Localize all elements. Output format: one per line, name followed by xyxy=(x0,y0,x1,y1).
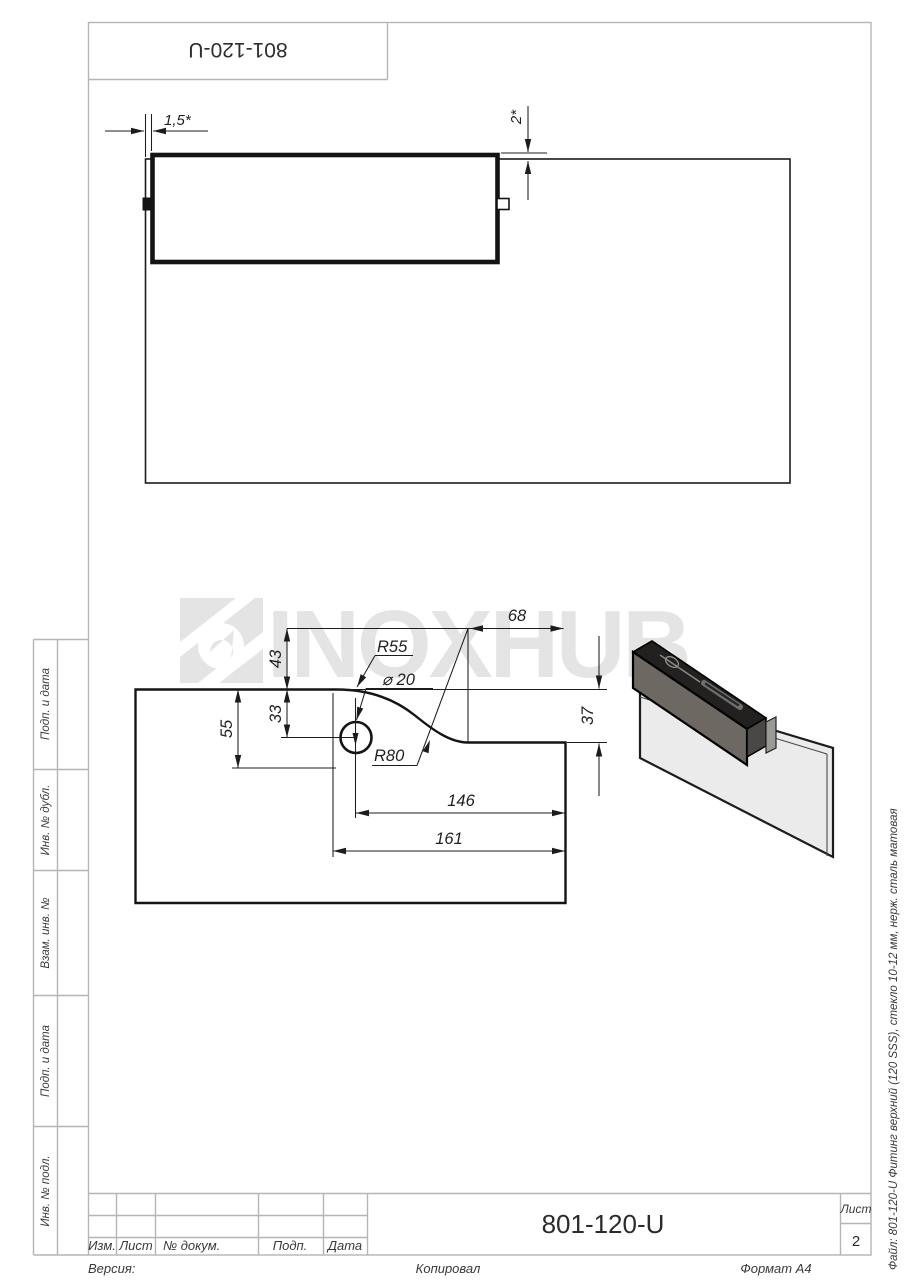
sidebar-item-podp-data-1: Подп. и дата xyxy=(40,668,52,740)
glass-profile-outline xyxy=(136,690,566,904)
footer-version-label: Версия: xyxy=(88,1261,136,1276)
dim-label-37: 37 xyxy=(579,706,597,725)
dim-label-55: 55 xyxy=(218,719,236,738)
inoxhub-watermark: INOXHUB xyxy=(180,591,689,698)
title-block-col-izm: Изм. xyxy=(88,1238,116,1253)
dim-label-161: 161 xyxy=(435,830,463,848)
file-note: Файл: 801-120-U Фитинг верхний (120 SSS)… xyxy=(888,808,900,1270)
top-doc-number: 801-120-U xyxy=(188,38,287,61)
footer-copied-label: Копировал xyxy=(416,1261,481,1276)
sidebar-item-vzam-inv: Взам. инв. № xyxy=(40,897,52,969)
dim-label-dia20: ⌀ 20 xyxy=(382,671,416,689)
drawing-canvas: INOXHUB 801-120-U Подп. и дата Инв. № ду… xyxy=(0,0,905,1280)
title-block-col-date: Дата xyxy=(326,1238,362,1253)
dim-label-offset: 2* xyxy=(508,109,525,125)
dim-label-146: 146 xyxy=(447,792,475,810)
fitting-3d-pin xyxy=(766,717,776,753)
title-block-doc-number: 801-120-U xyxy=(542,1209,665,1239)
dim-label-gap: 1,5* xyxy=(164,112,192,129)
title-block-sheet-label: Лист xyxy=(840,1202,872,1216)
sidebar-item-inv-podl: Инв. № подл. xyxy=(40,1155,52,1226)
inoxhub-logo-icon xyxy=(180,598,263,683)
fitting-left-tab xyxy=(143,198,151,211)
sidebar-item-podp-data-2: Подп. и дата xyxy=(40,1025,52,1097)
title-block-col-doc: № докум. xyxy=(163,1238,220,1253)
dim-label-33: 33 xyxy=(267,704,285,723)
top-projection-view: 1,5* 2* xyxy=(105,106,790,483)
footer-format-label: Формат А4 xyxy=(740,1261,811,1276)
fitting-right-tab xyxy=(497,199,509,210)
dim-label-r55: R55 xyxy=(377,638,408,656)
dim-label-43: 43 xyxy=(267,649,285,668)
dim-label-r80: R80 xyxy=(374,747,405,765)
isometric-view xyxy=(633,641,833,857)
sidebar-item-inv-dubl: Инв. № дубл. xyxy=(40,785,52,856)
watermark-text: INOXHUB xyxy=(267,591,689,698)
dim-label-68: 68 xyxy=(508,607,527,625)
title-block-col-list: Лист xyxy=(118,1238,153,1253)
fitting-outline-top-view xyxy=(153,155,498,262)
title-block-sheet-number: 2 xyxy=(852,1233,860,1250)
drawing-sheet: INOXHUB 801-120-U Подп. и дата Инв. № ду… xyxy=(0,0,905,1280)
title-block-col-sign: Подп. xyxy=(273,1238,308,1253)
